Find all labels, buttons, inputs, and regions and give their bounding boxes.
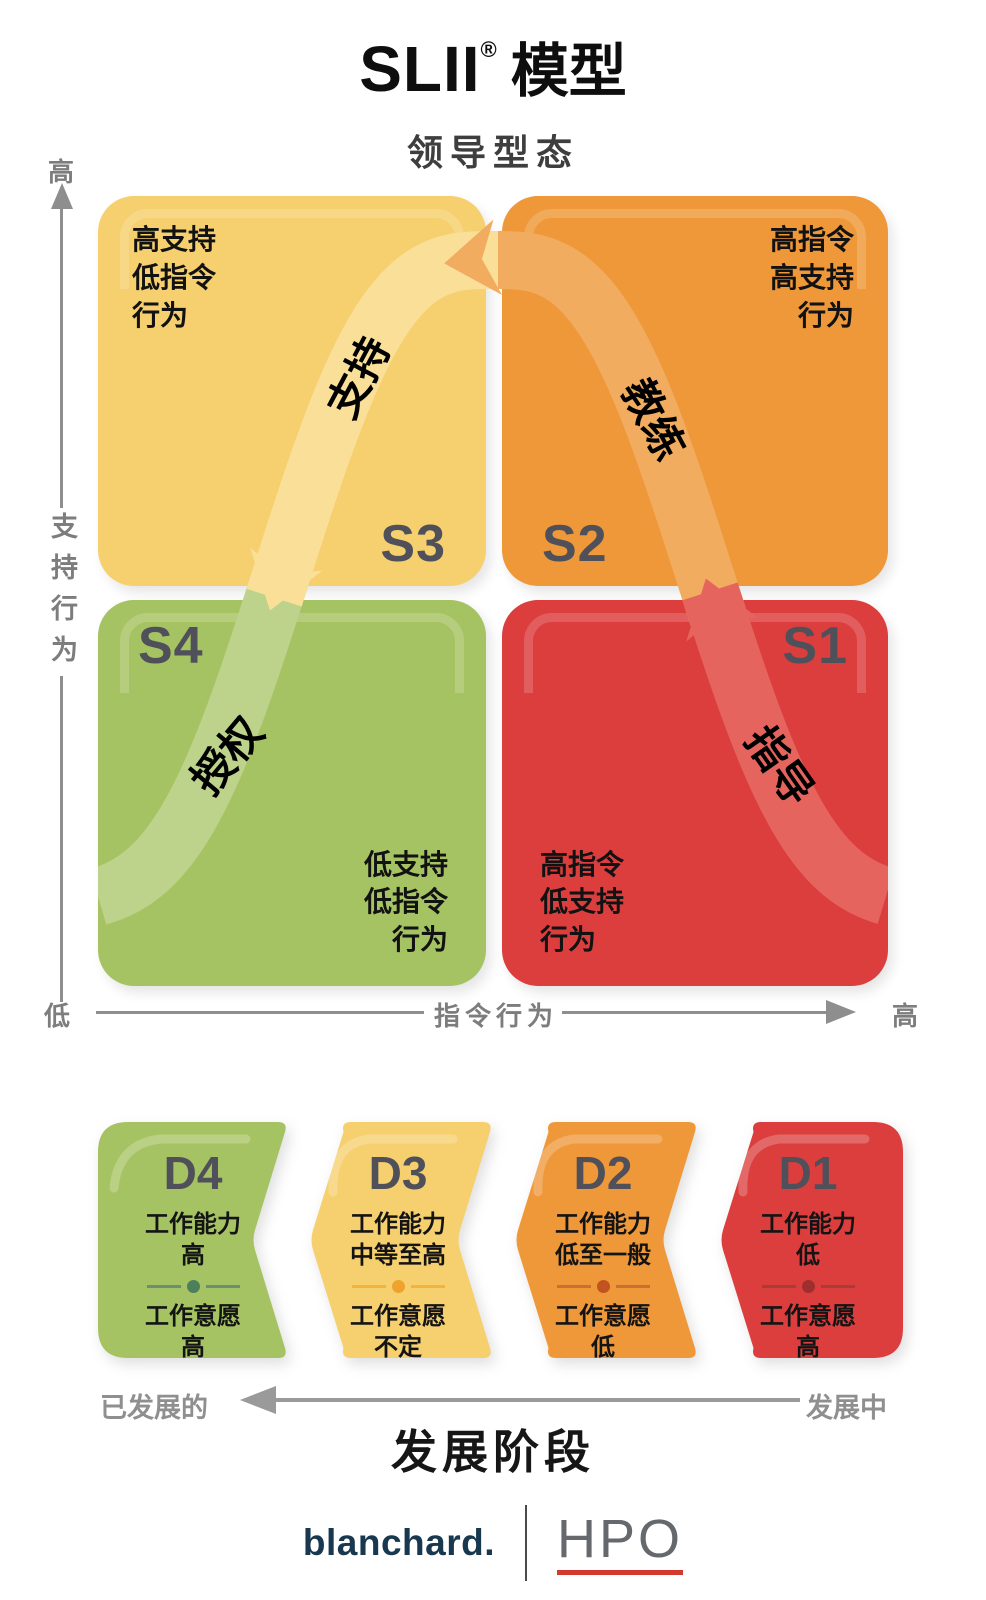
x-axis-arrow-right-icon (826, 1000, 856, 1024)
competence-value: 低至一般 (513, 1241, 693, 1272)
competence-label: 工作能力 (718, 1210, 898, 1241)
commitment-value: 低 (513, 1333, 693, 1364)
commitment-label: 工作意愿 (513, 1302, 693, 1333)
divider-with-dot (513, 1280, 693, 1293)
quadrant-s3-description: 高支持 低指令 行为 (132, 222, 216, 335)
y-axis-title: 支持行为 (40, 512, 82, 676)
quadrant-s1-label: S1 (782, 616, 848, 676)
slii-model-infographic: SLII®模型 领导型态 高 支持行为 低 指令行为 高 高支持 低指令 行为 … (0, 0, 986, 1600)
axis-low-label: 低 (36, 996, 78, 1033)
stage-d4-label: D4 (103, 1146, 283, 1200)
competence-label: 工作能力 (103, 1210, 283, 1241)
dev-arrow-line (274, 1398, 800, 1402)
quadrant-s3-label: S3 (380, 514, 446, 574)
y-axis-line-lower (60, 676, 63, 1002)
x-axis-title: 指令行为 (426, 996, 566, 1033)
hpo-underline (557, 1570, 683, 1575)
commitment-label: 工作意愿 (103, 1302, 283, 1333)
commitment-value: 不定 (308, 1333, 488, 1364)
quadrant-s4: 低支持 低指令 行为 S4 (98, 600, 486, 986)
quadrant-s4-description: 低支持 低指令 行为 (364, 847, 448, 960)
commitment-label: 工作意愿 (718, 1302, 898, 1333)
y-axis-line-upper (60, 208, 63, 508)
quadrant-s1: 高指令 低支持 行为 S1 (502, 600, 888, 986)
hpo-logo: HPO (557, 1512, 683, 1575)
quadrant-s2: 高指令 高支持 行为 S2 (502, 196, 888, 586)
footer: blanchard. HPO (0, 1505, 986, 1581)
stage-d4: D4 工作能力 高 工作意愿 高 (103, 1146, 283, 1364)
quadrant-s3: 高支持 低指令 行为 S3 (98, 196, 486, 586)
leadership-style-matrix: 高支持 低指令 行为 S3 高指令 高支持 行为 S2 低支持 低指令 行为 S… (98, 196, 888, 986)
x-axis-line-right (562, 1011, 828, 1014)
y-axis-arrow-up-icon (51, 183, 73, 209)
commitment-value: 高 (103, 1333, 283, 1364)
stage-d3: D3 工作能力 中等至高 工作意愿 不定 (308, 1146, 488, 1364)
divider-with-dot (308, 1280, 488, 1293)
stage-d1-label: D1 (718, 1146, 898, 1200)
competence-value: 低 (718, 1241, 898, 1272)
quadrant-s4-label: S4 (138, 616, 204, 676)
competence-label: 工作能力 (308, 1210, 488, 1241)
leadership-styles-heading: 领导型态 (0, 124, 986, 176)
quadrant-s2-label: S2 (542, 514, 608, 574)
stage-d3-label: D3 (308, 1146, 488, 1200)
footer-divider (525, 1505, 527, 1581)
page-title: SLII®模型 (0, 24, 986, 108)
stage-d2-label: D2 (513, 1146, 693, 1200)
stage-d2: D2 工作能力 低至一般 工作意愿 低 (513, 1146, 693, 1364)
stage-d1: D1 工作能力 低 工作意愿 高 (718, 1146, 898, 1364)
x-axis-line-left (96, 1011, 424, 1014)
divider-with-dot (103, 1280, 283, 1293)
quadrant-s2-description: 高指令 高支持 行为 (770, 222, 854, 335)
development-stages-heading: 发展阶段 (0, 1416, 986, 1482)
quadrant-s1-description: 高指令 低支持 行为 (540, 847, 624, 960)
x-axis-high-label: 高 (884, 996, 926, 1033)
commitment-value: 高 (718, 1333, 898, 1364)
title-brand: SLII (359, 33, 480, 105)
registered-mark: ® (481, 37, 497, 62)
competence-label: 工作能力 (513, 1210, 693, 1241)
divider-with-dot (718, 1280, 898, 1293)
competence-value: 高 (103, 1241, 283, 1272)
blanchard-logo: blanchard. (303, 1522, 495, 1564)
commitment-label: 工作意愿 (308, 1302, 488, 1333)
dev-arrow-left-icon (240, 1386, 276, 1414)
title-text: 模型 (511, 39, 627, 104)
competence-value: 中等至高 (308, 1241, 488, 1272)
